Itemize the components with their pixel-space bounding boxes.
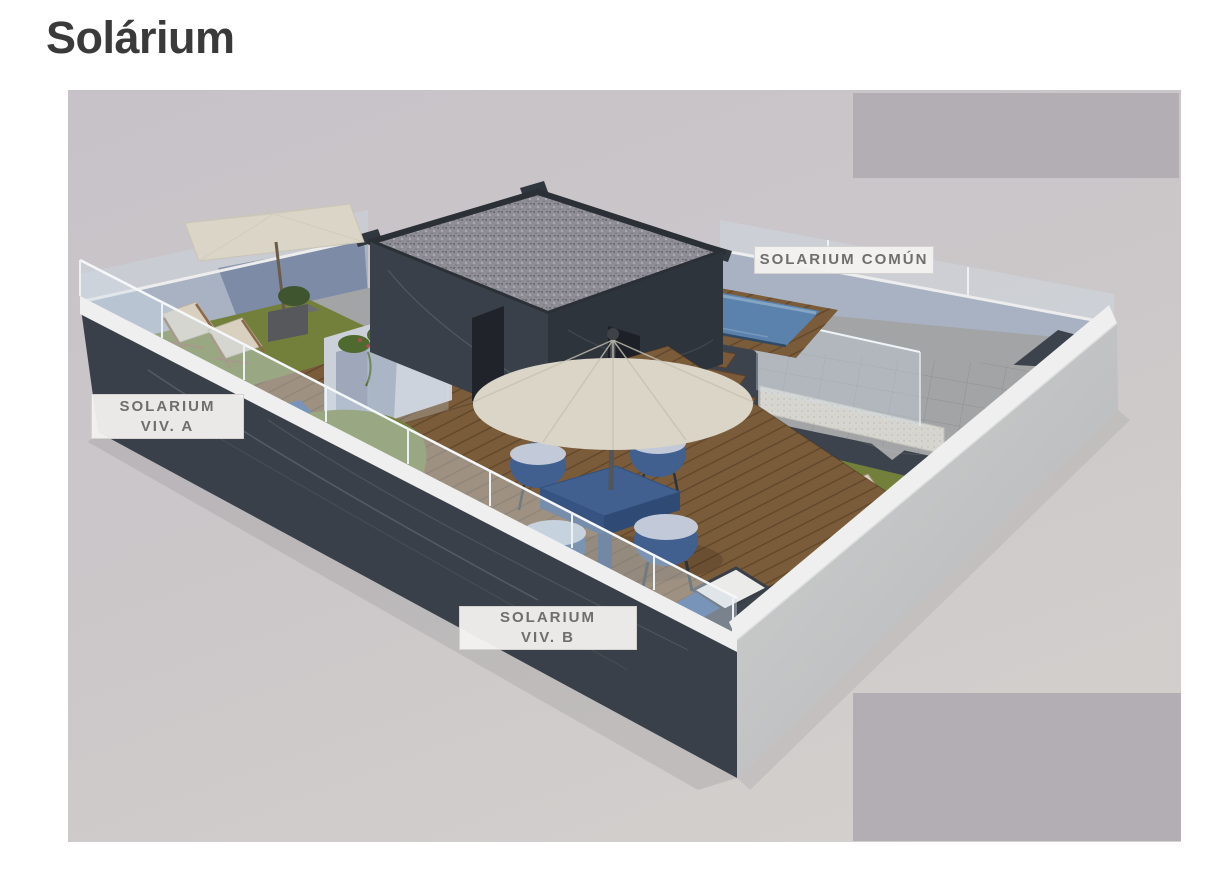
label-solarium-viv-b: SOLARIUM VIV. B xyxy=(459,606,637,650)
watermark-block-top-right xyxy=(853,93,1179,178)
page-title: Solárium xyxy=(46,12,235,64)
label-solarium-comun-text: SOLARIUM COMÚN xyxy=(760,250,929,270)
label-solarium-viv-a-line2: VIV. A xyxy=(141,417,194,437)
label-solarium-viv-b-line1: SOLARIUM xyxy=(500,608,596,628)
solarium-render-figure: SOLARIUM COMÚN SOLARIUM VIV. A SOLARIUM … xyxy=(68,90,1181,842)
watermark-block-bottom-right xyxy=(853,693,1181,841)
label-solarium-viv-a: SOLARIUM VIV. A xyxy=(91,394,244,439)
label-solarium-viv-b-line2: VIV. B xyxy=(521,628,575,648)
label-solarium-viv-a-line1: SOLARIUM xyxy=(120,397,216,417)
label-solarium-comun: SOLARIUM COMÚN xyxy=(754,246,934,274)
render-scene xyxy=(68,90,1181,842)
